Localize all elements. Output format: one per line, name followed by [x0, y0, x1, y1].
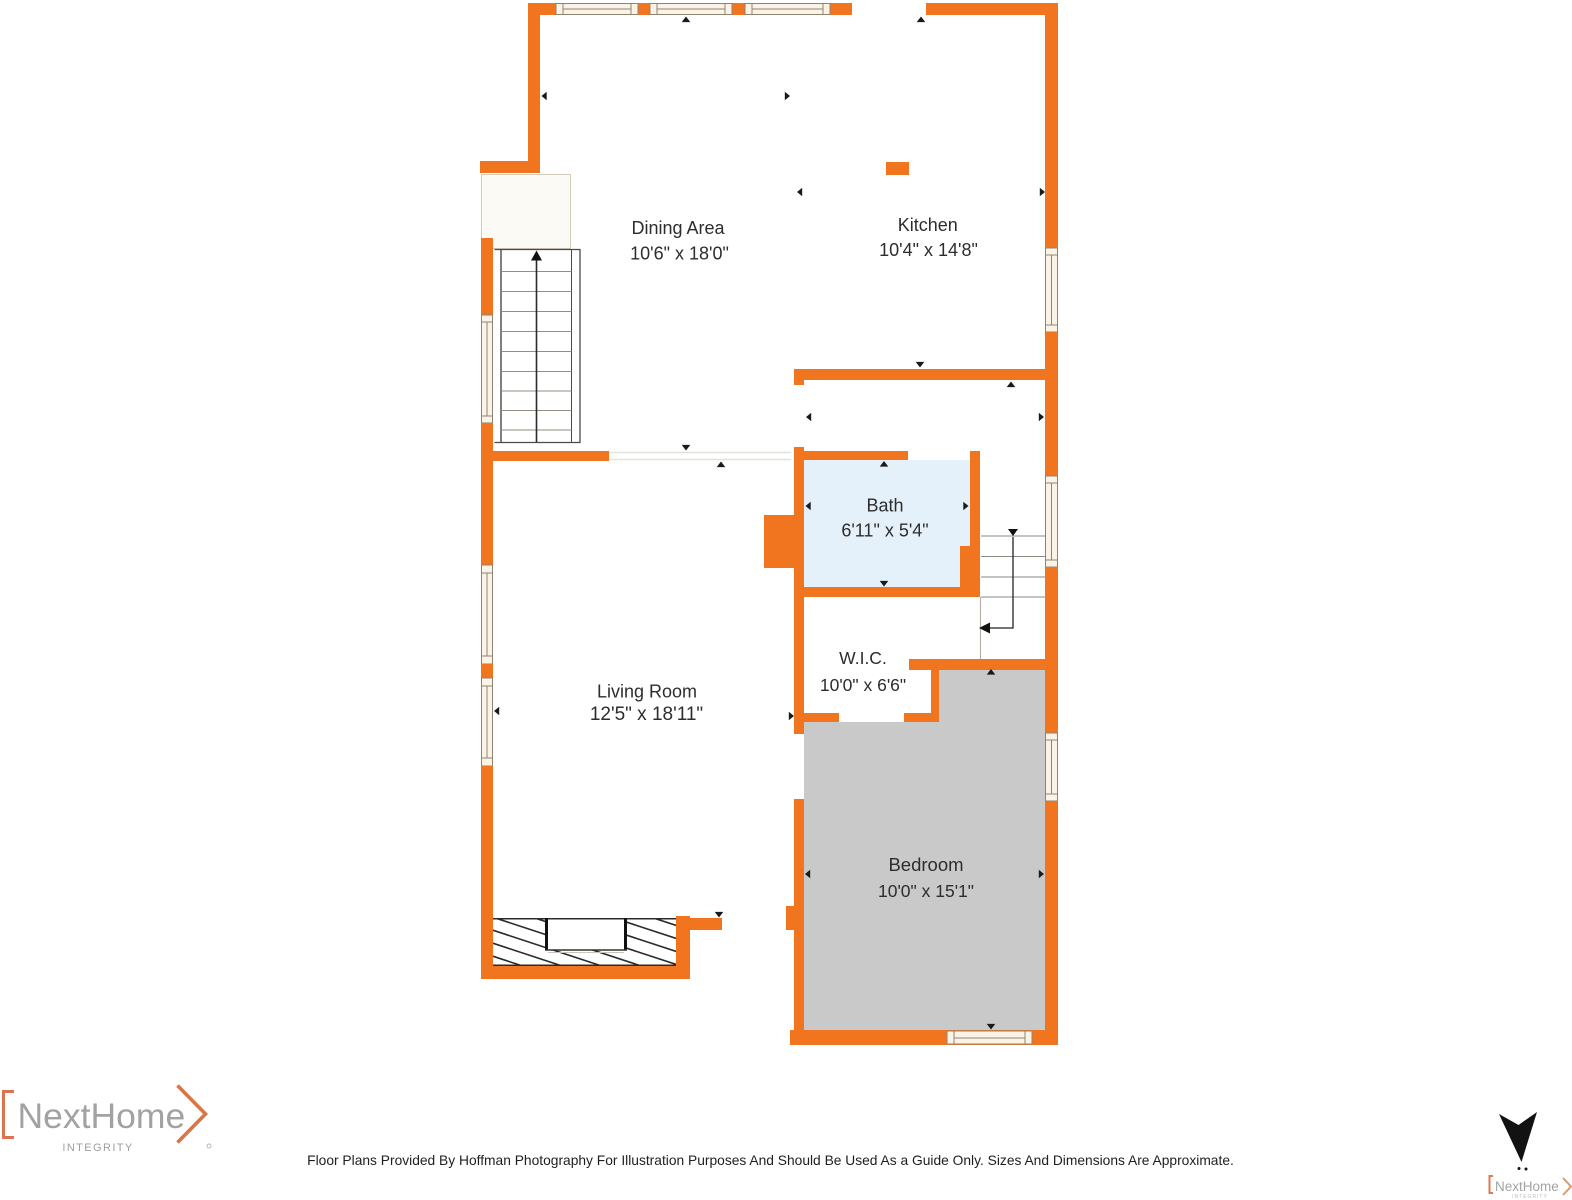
- svg-text:10'0" x 15'1": 10'0" x 15'1": [878, 881, 974, 901]
- svg-text:Floor Plans Provided By Hoffma: Floor Plans Provided By Hoffman Photogra…: [307, 1153, 1234, 1168]
- svg-text:12'5" x 18'11": 12'5" x 18'11": [590, 704, 703, 725]
- svg-text:Bedroom: Bedroom: [888, 854, 963, 875]
- svg-text:Living Room: Living Room: [597, 682, 697, 702]
- svg-text:6'11" x 5'4": 6'11" x 5'4": [841, 521, 928, 541]
- svg-text:Kitchen: Kitchen: [898, 215, 958, 235]
- svg-text:INTEGRITY: INTEGRITY: [1512, 1194, 1548, 1200]
- svg-text:INTEGRITY: INTEGRITY: [62, 1142, 133, 1154]
- svg-text:NextHome: NextHome: [1495, 1179, 1559, 1194]
- svg-text:10'0" x 6'6": 10'0" x 6'6": [820, 675, 906, 695]
- svg-text:W.I.C.: W.I.C.: [839, 648, 887, 668]
- svg-text:NextHome: NextHome: [18, 1096, 186, 1136]
- svg-text:Bath: Bath: [866, 496, 903, 516]
- svg-text:10'4" x 14'8": 10'4" x 14'8": [879, 240, 978, 260]
- svg-text:10'6" x 18'0": 10'6" x 18'0": [630, 244, 729, 264]
- svg-text:Dining Area: Dining Area: [631, 218, 725, 238]
